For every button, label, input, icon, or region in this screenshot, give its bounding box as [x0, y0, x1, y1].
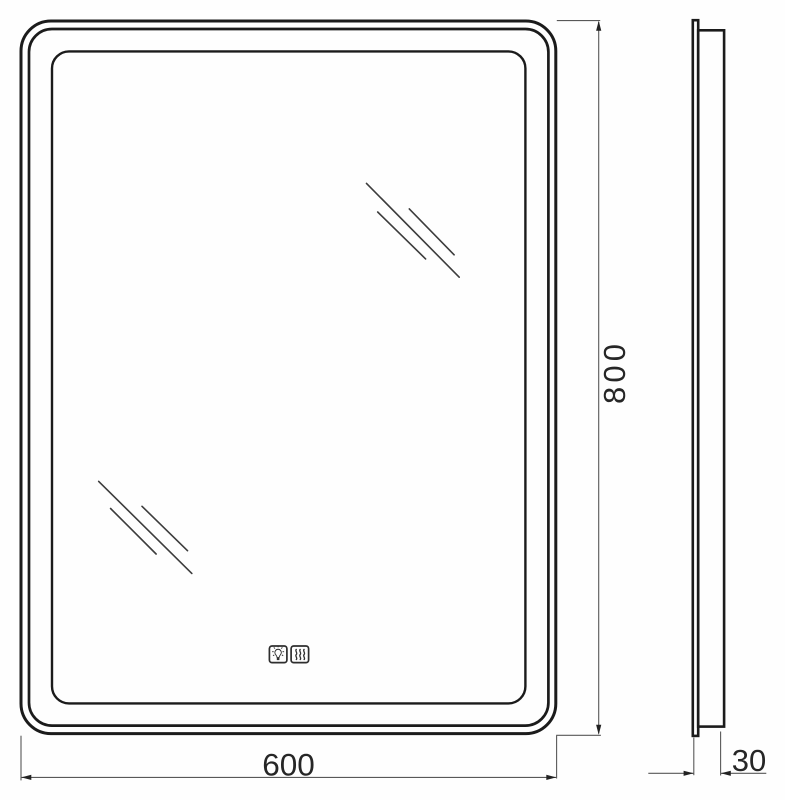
svg-text:30: 30 [732, 743, 766, 778]
svg-text:600: 600 [262, 746, 315, 782]
svg-text:800: 800 [597, 344, 632, 404]
